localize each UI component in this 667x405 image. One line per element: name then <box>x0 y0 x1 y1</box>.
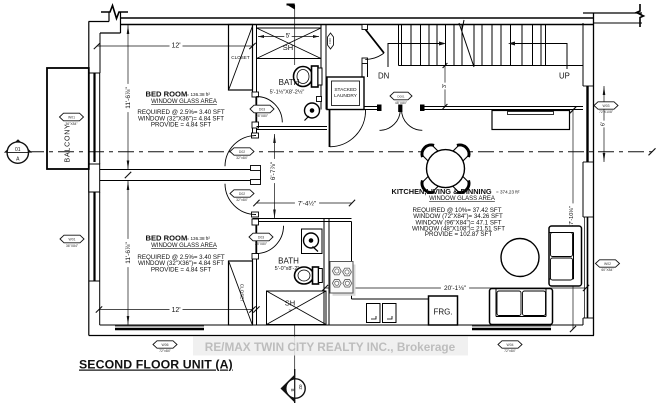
svg-text:BATH: BATH <box>278 257 299 266</box>
svg-text:20'-1⅛": 20'-1⅛" <box>444 285 467 292</box>
svg-text:11'-6⅞": 11'-6⅞" <box>125 242 132 264</box>
svg-text:6'-7⅞": 6'-7⅞" <box>270 161 277 180</box>
svg-text:PROVIDE = 102.87 SFT: PROVIDE = 102.87 SFT <box>425 231 492 238</box>
svg-text:W04: W04 <box>507 343 514 347</box>
svg-text:DN: DN <box>378 72 389 81</box>
svg-text:BALCONY: BALCONY <box>65 123 72 162</box>
svg-text:5': 5' <box>286 34 290 40</box>
svg-text:D02: D02 <box>239 150 245 154</box>
svg-text:28"X80": 28"X80" <box>256 114 269 118</box>
svg-text:WINDOW GLASS AREA: WINDOW GLASS AREA <box>151 243 217 249</box>
svg-text:WINDOW GLASS AREA: WINDOW GLASS AREA <box>151 99 217 105</box>
svg-text:12': 12' <box>171 43 180 50</box>
svg-text:01: 01 <box>15 147 21 153</box>
svg-text:CLOSET: CLOSET <box>231 55 250 60</box>
svg-text:36"X84": 36"X84" <box>66 244 79 248</box>
svg-text:D02: D02 <box>239 192 245 196</box>
svg-text:SECOND FLOOR UNIT (A): SECOND FLOOR UNIT (A) <box>79 358 233 372</box>
svg-text:= 136.38 ft²: = 136.38 ft² <box>187 92 211 97</box>
svg-text:W01: W01 <box>69 237 76 241</box>
svg-text:3': 3' <box>289 308 292 313</box>
svg-text:60"X84": 60"X84" <box>601 268 614 272</box>
svg-text:W02: W02 <box>604 262 611 266</box>
svg-text:D04: D04 <box>328 38 332 44</box>
svg-text:72"X108": 72"X108" <box>599 110 614 114</box>
svg-text:36"X84": 36"X84" <box>65 122 78 126</box>
svg-text:5'-1½"X8'-2½": 5'-1½"X8'-2½" <box>270 89 305 96</box>
svg-text:17'-10⅛": 17'-10⅛" <box>569 206 575 228</box>
svg-text:B: B <box>290 388 295 391</box>
svg-text:6': 6' <box>600 122 606 126</box>
svg-text:CLOSET: CLOSET <box>240 284 245 303</box>
svg-text:D001: D001 <box>397 94 405 98</box>
svg-text:72"x84": 72"x84" <box>504 349 516 353</box>
svg-text:W01: W01 <box>68 115 75 119</box>
svg-text:KITCHEN,LIVING & DINNING: KITCHEN,LIVING & DINNING <box>392 187 492 196</box>
svg-text:UP: UP <box>559 72 570 81</box>
svg-text:WINDOW GLASS AREA: WINDOW GLASS AREA <box>429 196 495 202</box>
svg-text:PROVIDE = 4.84 SFT: PROVIDE = 4.84 SFT <box>151 121 212 128</box>
svg-text:LAUNDRY: LAUNDRY <box>334 93 358 99</box>
svg-text:02: 02 <box>298 384 303 390</box>
svg-text:W03: W03 <box>603 104 610 108</box>
svg-text:72"x84": 72"x84" <box>159 349 171 353</box>
svg-text:SH: SH <box>285 299 295 308</box>
svg-text:32"x84": 32"x84" <box>236 156 248 160</box>
svg-text:PROVIDE = 4.84 SFT: PROVIDE = 4.84 SFT <box>151 266 212 273</box>
svg-text:D03: D03 <box>258 235 264 239</box>
svg-text:48"X80": 48"X80" <box>395 101 408 105</box>
svg-text:STACKED: STACKED <box>334 87 357 93</box>
svg-text:BED ROOM: BED ROOM <box>146 90 188 99</box>
svg-text:28"X80": 28"X80" <box>255 242 268 246</box>
svg-text:SH: SH <box>283 43 293 52</box>
svg-text:5'-0"x8'-2": 5'-0"x8'-2" <box>275 266 300 272</box>
svg-text:= 374.23 ft²: = 374.23 ft² <box>496 190 520 195</box>
svg-text:11'-6⅞": 11'-6⅞" <box>125 87 132 109</box>
svg-text:FRG.: FRG. <box>433 308 452 317</box>
svg-text:= 136.38 ft²: = 136.38 ft² <box>187 236 211 241</box>
svg-text:BED ROOM: BED ROOM <box>146 234 188 243</box>
svg-text:W06: W06 <box>162 343 169 347</box>
svg-text:D03: D03 <box>259 107 265 111</box>
svg-text:BATH: BATH <box>279 78 300 87</box>
svg-text:7'-4½": 7'-4½" <box>298 199 317 207</box>
svg-text:32"x84": 32"x84" <box>236 198 248 202</box>
svg-text:3': 3' <box>442 84 448 88</box>
svg-text:RE/MAX TWIN CITY REALTY INC.,: RE/MAX TWIN CITY REALTY INC., Brokerage <box>205 340 456 354</box>
svg-text:12': 12' <box>171 307 180 314</box>
